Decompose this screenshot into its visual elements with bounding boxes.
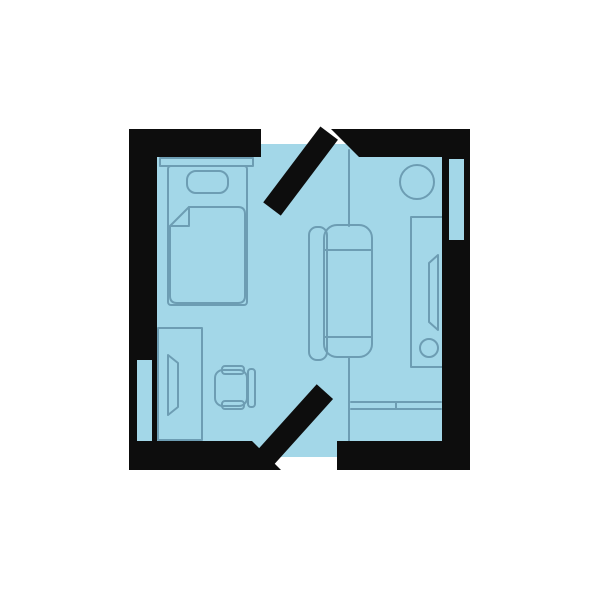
floor-plan-canvas <box>0 0 600 600</box>
floor-plan-image <box>0 0 600 600</box>
window-left <box>137 360 152 441</box>
wall-bottom-right <box>337 441 470 470</box>
window-right <box>449 159 464 240</box>
